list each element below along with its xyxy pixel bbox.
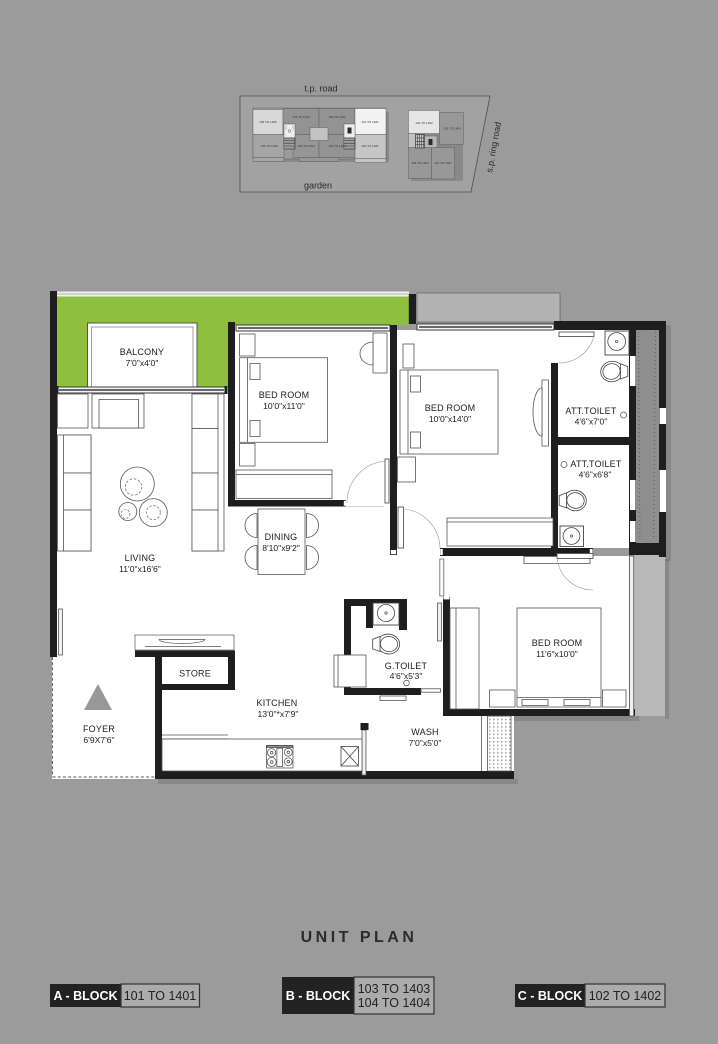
svg-text:7'0"x4'0": 7'0"x4'0"	[126, 358, 159, 368]
svg-text:4'6"x5'3": 4'6"x5'3"	[390, 671, 423, 681]
svg-text:6'9X7'6": 6'9X7'6"	[83, 735, 114, 745]
svg-text:105 TO 1405: 105 TO 1405	[259, 120, 277, 124]
svg-text:C - BLOCK: C - BLOCK	[518, 989, 583, 1003]
svg-text:A - BLOCK: A - BLOCK	[53, 989, 117, 1003]
svg-text:13'0"*x7'9": 13'0"*x7'9"	[258, 709, 299, 719]
svg-text:10'0"x14'0": 10'0"x14'0"	[429, 414, 471, 424]
svg-text:garden: garden	[304, 181, 332, 191]
svg-text:LIVING: LIVING	[125, 553, 156, 563]
svg-text:ATT.TOILET: ATT.TOILET	[570, 459, 621, 469]
svg-text:UNIT PLAN: UNIT PLAN	[301, 929, 418, 946]
svg-text:DINING: DINING	[265, 532, 298, 542]
svg-text:4'6"x6'8": 4'6"x6'8"	[579, 470, 612, 480]
svg-text:BED ROOM: BED ROOM	[259, 390, 310, 400]
svg-text:102 TO 1402: 102 TO 1402	[589, 989, 662, 1003]
svg-text:101 TO 1401: 101 TO 1401	[434, 161, 452, 165]
svg-text:103 TO 1403: 103 TO 1403	[292, 115, 310, 119]
svg-text:BALCONY: BALCONY	[120, 347, 164, 357]
svg-text:WASH: WASH	[411, 727, 438, 737]
svg-text:103 TO 1403: 103 TO 1403	[443, 127, 461, 131]
svg-text:BED ROOM: BED ROOM	[425, 403, 476, 413]
svg-text:KITCHEN: KITCHEN	[257, 698, 298, 708]
svg-text:8'10"x9'2": 8'10"x9'2"	[262, 543, 300, 553]
svg-text:104 TO 1404: 104 TO 1404	[411, 161, 429, 165]
svg-text:B - BLOCK: B - BLOCK	[286, 989, 351, 1003]
svg-text:G.TOILET: G.TOILET	[385, 661, 428, 671]
svg-text:11'0"x16'6": 11'0"x16'6"	[119, 564, 161, 574]
svg-text:101 TO 1401: 101 TO 1401	[124, 989, 197, 1003]
svg-text:102 TO 1402: 102 TO 1402	[415, 121, 433, 125]
svg-text:t.p. road: t.p. road	[304, 84, 337, 94]
svg-text:11'6"x10'0": 11'6"x10'0"	[536, 649, 578, 659]
svg-text:104 TO 1404: 104 TO 1404	[328, 144, 346, 148]
svg-text:FOYER: FOYER	[83, 724, 115, 734]
svg-text:101 TO 1401: 101 TO 1401	[361, 120, 379, 124]
svg-text:4'6"x7'0": 4'6"x7'0"	[575, 417, 608, 427]
svg-text:STORE: STORE	[179, 669, 211, 679]
svg-text:106 TO 1406: 106 TO 1406	[260, 144, 278, 148]
svg-text:101 TO 1401: 101 TO 1401	[361, 144, 379, 148]
svg-text:104 TO 1404: 104 TO 1404	[358, 996, 431, 1010]
svg-text:ATT.TOILET: ATT.TOILET	[565, 406, 616, 416]
svg-text:7'0"x5'0": 7'0"x5'0"	[409, 738, 442, 748]
svg-text:10'0"x11'0": 10'0"x11'0"	[263, 401, 305, 411]
svg-text:BED ROOM: BED ROOM	[532, 638, 583, 648]
svg-text:102 TO 1402: 102 TO 1402	[328, 115, 346, 119]
svg-text:104 TO 1404: 104 TO 1404	[297, 144, 315, 148]
svg-text:103 TO 1403: 103 TO 1403	[358, 982, 431, 996]
